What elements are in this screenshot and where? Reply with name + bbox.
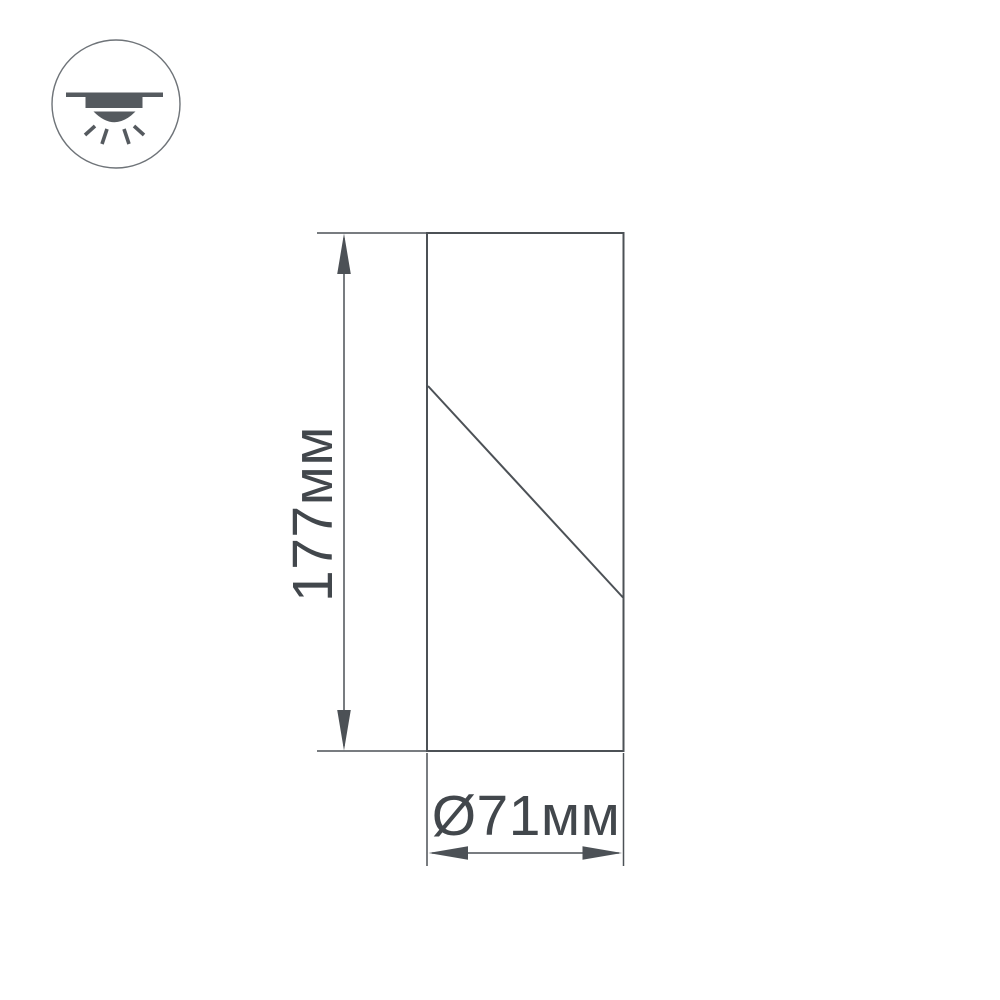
icon-fixture-body — [86, 93, 143, 109]
height-dimension: 177мм — [281, 233, 426, 751]
diameter-arrowhead-left — [429, 846, 469, 859]
height-dimension-label: 177мм — [281, 426, 345, 602]
fixture-diagonal-edge — [428, 386, 623, 598]
dimension-drawing: 177мм Ø71мм — [0, 0, 1000, 1000]
ceiling-downlight-icon — [52, 40, 180, 168]
diameter-dimension: Ø71мм — [427, 753, 624, 866]
diameter-arrowhead-right — [583, 846, 623, 859]
product-outline — [427, 233, 624, 751]
height-arrowhead-down — [337, 710, 351, 751]
drawing-page: 177мм Ø71мм — [0, 0, 1000, 1000]
height-arrowhead-up — [337, 234, 351, 275]
diameter-dimension-label: Ø71мм — [432, 784, 621, 848]
